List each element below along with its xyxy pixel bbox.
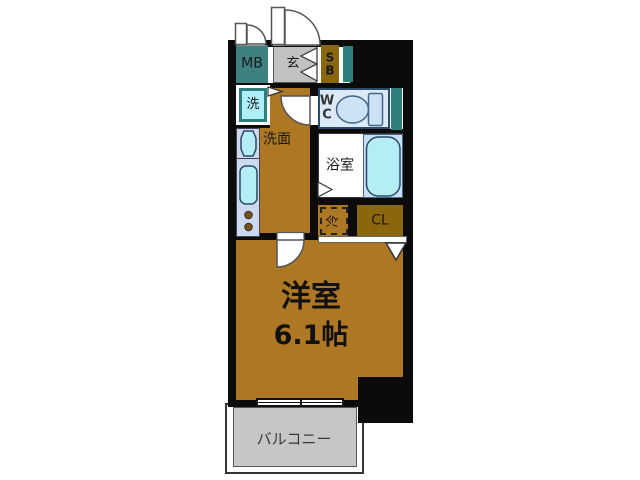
washroom-label: 洗面 bbox=[263, 133, 291, 148]
pipe-space-wc bbox=[391, 88, 402, 130]
meter-box-label: MB bbox=[241, 57, 263, 72]
wall-right bbox=[403, 40, 413, 423]
wall-mid-vertical-b bbox=[310, 125, 318, 240]
opening-top-mb bbox=[237, 40, 265, 46]
kitchen-counter bbox=[236, 128, 260, 237]
wc-label: W C bbox=[320, 94, 334, 121]
wall-bottom-left bbox=[228, 400, 258, 407]
entrance-label: 玄 bbox=[286, 57, 299, 71]
opening-top-entrance bbox=[273, 40, 317, 46]
balcony-label: バルコニー bbox=[257, 432, 332, 448]
wall-fridge-closet-divider bbox=[348, 205, 357, 240]
refrigerator-label: 冷 bbox=[327, 214, 341, 227]
washing-machine-label: 洗 bbox=[246, 98, 259, 112]
pipe-space-top bbox=[343, 46, 353, 82]
shoe-box-label: S B bbox=[325, 51, 334, 76]
balcony-window bbox=[256, 398, 344, 407]
main-room-name-label: 洋室 bbox=[281, 281, 341, 313]
bathtub-panel bbox=[363, 134, 403, 198]
main-room-size-label: 6.1帖 bbox=[274, 322, 349, 350]
closet-label: CL bbox=[371, 214, 389, 229]
closet-door-track bbox=[318, 236, 407, 243]
window-center-tick bbox=[300, 400, 302, 405]
wall-room-top-mid bbox=[303, 233, 318, 240]
bathroom-label: 浴室 bbox=[326, 159, 354, 174]
wall-left bbox=[228, 40, 236, 407]
kitchen-counter-divider bbox=[236, 158, 260, 159]
main-room-floor bbox=[236, 237, 405, 400]
wall-mid-vertical-a bbox=[310, 88, 318, 96]
wall-top-right-block bbox=[350, 40, 403, 88]
wall-bath-bottom bbox=[310, 198, 403, 205]
floorplan-canvas: MB 玄 S B 洗 洗面 W C 浴室 冷 CL 洋室 6.1帖 バルコニー bbox=[0, 0, 640, 480]
entrance-door-leaf bbox=[272, 8, 285, 45]
wall-bottom-right-step bbox=[358, 377, 412, 423]
